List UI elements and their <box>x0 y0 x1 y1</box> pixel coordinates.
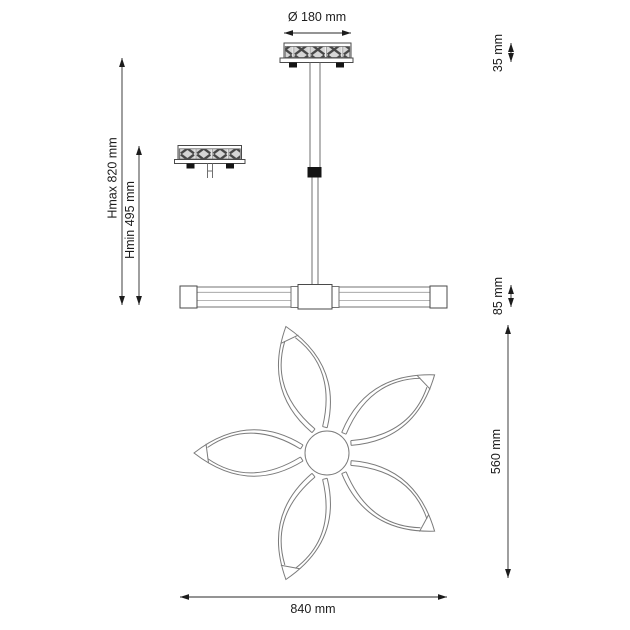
hmin-label: Hmin 495 mm <box>123 181 137 259</box>
shade-span-label: 560 mm <box>489 429 503 474</box>
dim-height-min: Hmin 495 mm <box>123 146 139 305</box>
dim-canopy-diameter: Ø 180 mm <box>284 10 351 33</box>
dim-bar-height: 85 mm <box>491 277 511 315</box>
lamp-bar-side-view <box>180 285 447 310</box>
small-canopy-ornament-band <box>179 149 240 159</box>
petal-bottom <box>264 469 342 587</box>
small-canopy-base-plate <box>175 160 246 164</box>
bar-center-block <box>298 285 332 310</box>
petal-top <box>264 319 342 437</box>
canopy-left-foot <box>289 63 297 68</box>
dim-canopy-height: 35 mm <box>491 34 511 72</box>
technical-drawing-canvas: Ø 180 mm <box>0 0 630 630</box>
dim-height-max: Hmax 820 mm <box>105 58 122 305</box>
canopy-height-label: 35 mm <box>491 34 505 72</box>
center-hub <box>305 431 349 475</box>
hmax-label: Hmax 820 mm <box>105 137 119 218</box>
fixture-width-label: 840 mm <box>290 602 335 616</box>
ceiling-canopy-front-view <box>280 43 353 68</box>
canopy-ornament-band <box>285 47 350 58</box>
lamp-dimension-drawing: Ø 180 mm <box>0 0 630 630</box>
bar-center-right-flange <box>332 287 339 308</box>
bar-left-end-cap <box>180 286 197 308</box>
small-canopy-right-foot <box>226 164 234 169</box>
petal-lower-right <box>333 448 448 550</box>
bar-right-end-cap <box>430 286 447 308</box>
small-canopy-left-foot <box>187 164 195 169</box>
canopy-right-foot <box>336 63 344 68</box>
bar-height-label: 85 mm <box>491 277 505 315</box>
rod-adjuster-connector <box>308 167 322 178</box>
petal-left <box>194 430 303 476</box>
canopy-diameter-label: Ø 180 mm <box>288 10 346 24</box>
petal-upper-right <box>333 356 448 458</box>
suspension-rod <box>308 63 322 286</box>
dim-fixture-width: 840 mm <box>180 597 447 616</box>
bar-center-left-flange <box>291 287 298 308</box>
dim-shade-span: 560 mm <box>489 325 508 578</box>
ceiling-canopy-side-view <box>175 146 246 179</box>
canopy-base-plate <box>280 58 353 63</box>
lamp-top-view <box>194 319 448 586</box>
